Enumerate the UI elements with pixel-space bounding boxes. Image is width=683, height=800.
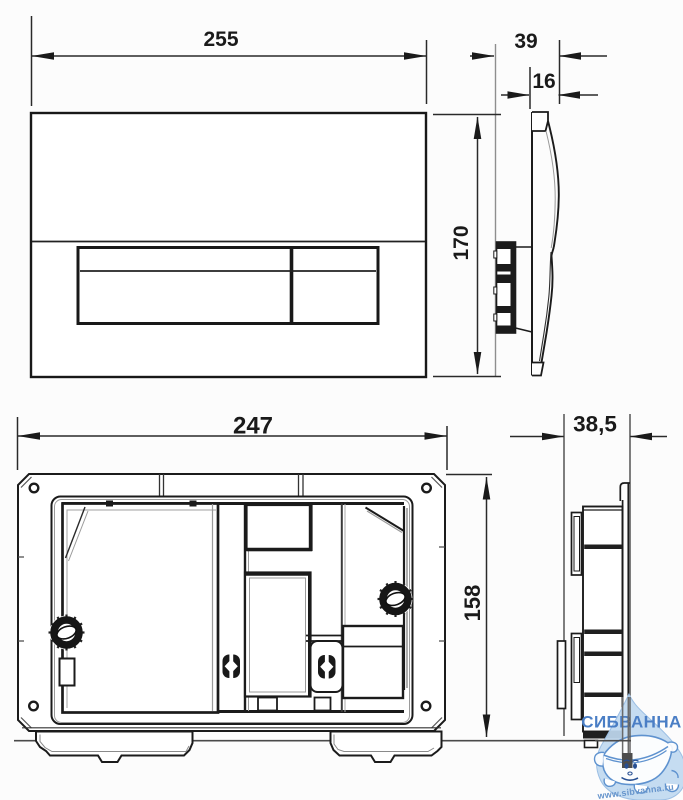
svg-text:39: 39 — [514, 30, 537, 53]
svg-text:38,5: 38,5 — [573, 412, 617, 437]
svg-text:СИБВАННА: СИБВАННА — [581, 713, 681, 732]
svg-text:247: 247 — [233, 413, 273, 440]
svg-text:16: 16 — [532, 70, 555, 93]
svg-text:170: 170 — [450, 225, 473, 260]
svg-text:158: 158 — [460, 585, 485, 622]
svg-text:255: 255 — [203, 28, 238, 51]
